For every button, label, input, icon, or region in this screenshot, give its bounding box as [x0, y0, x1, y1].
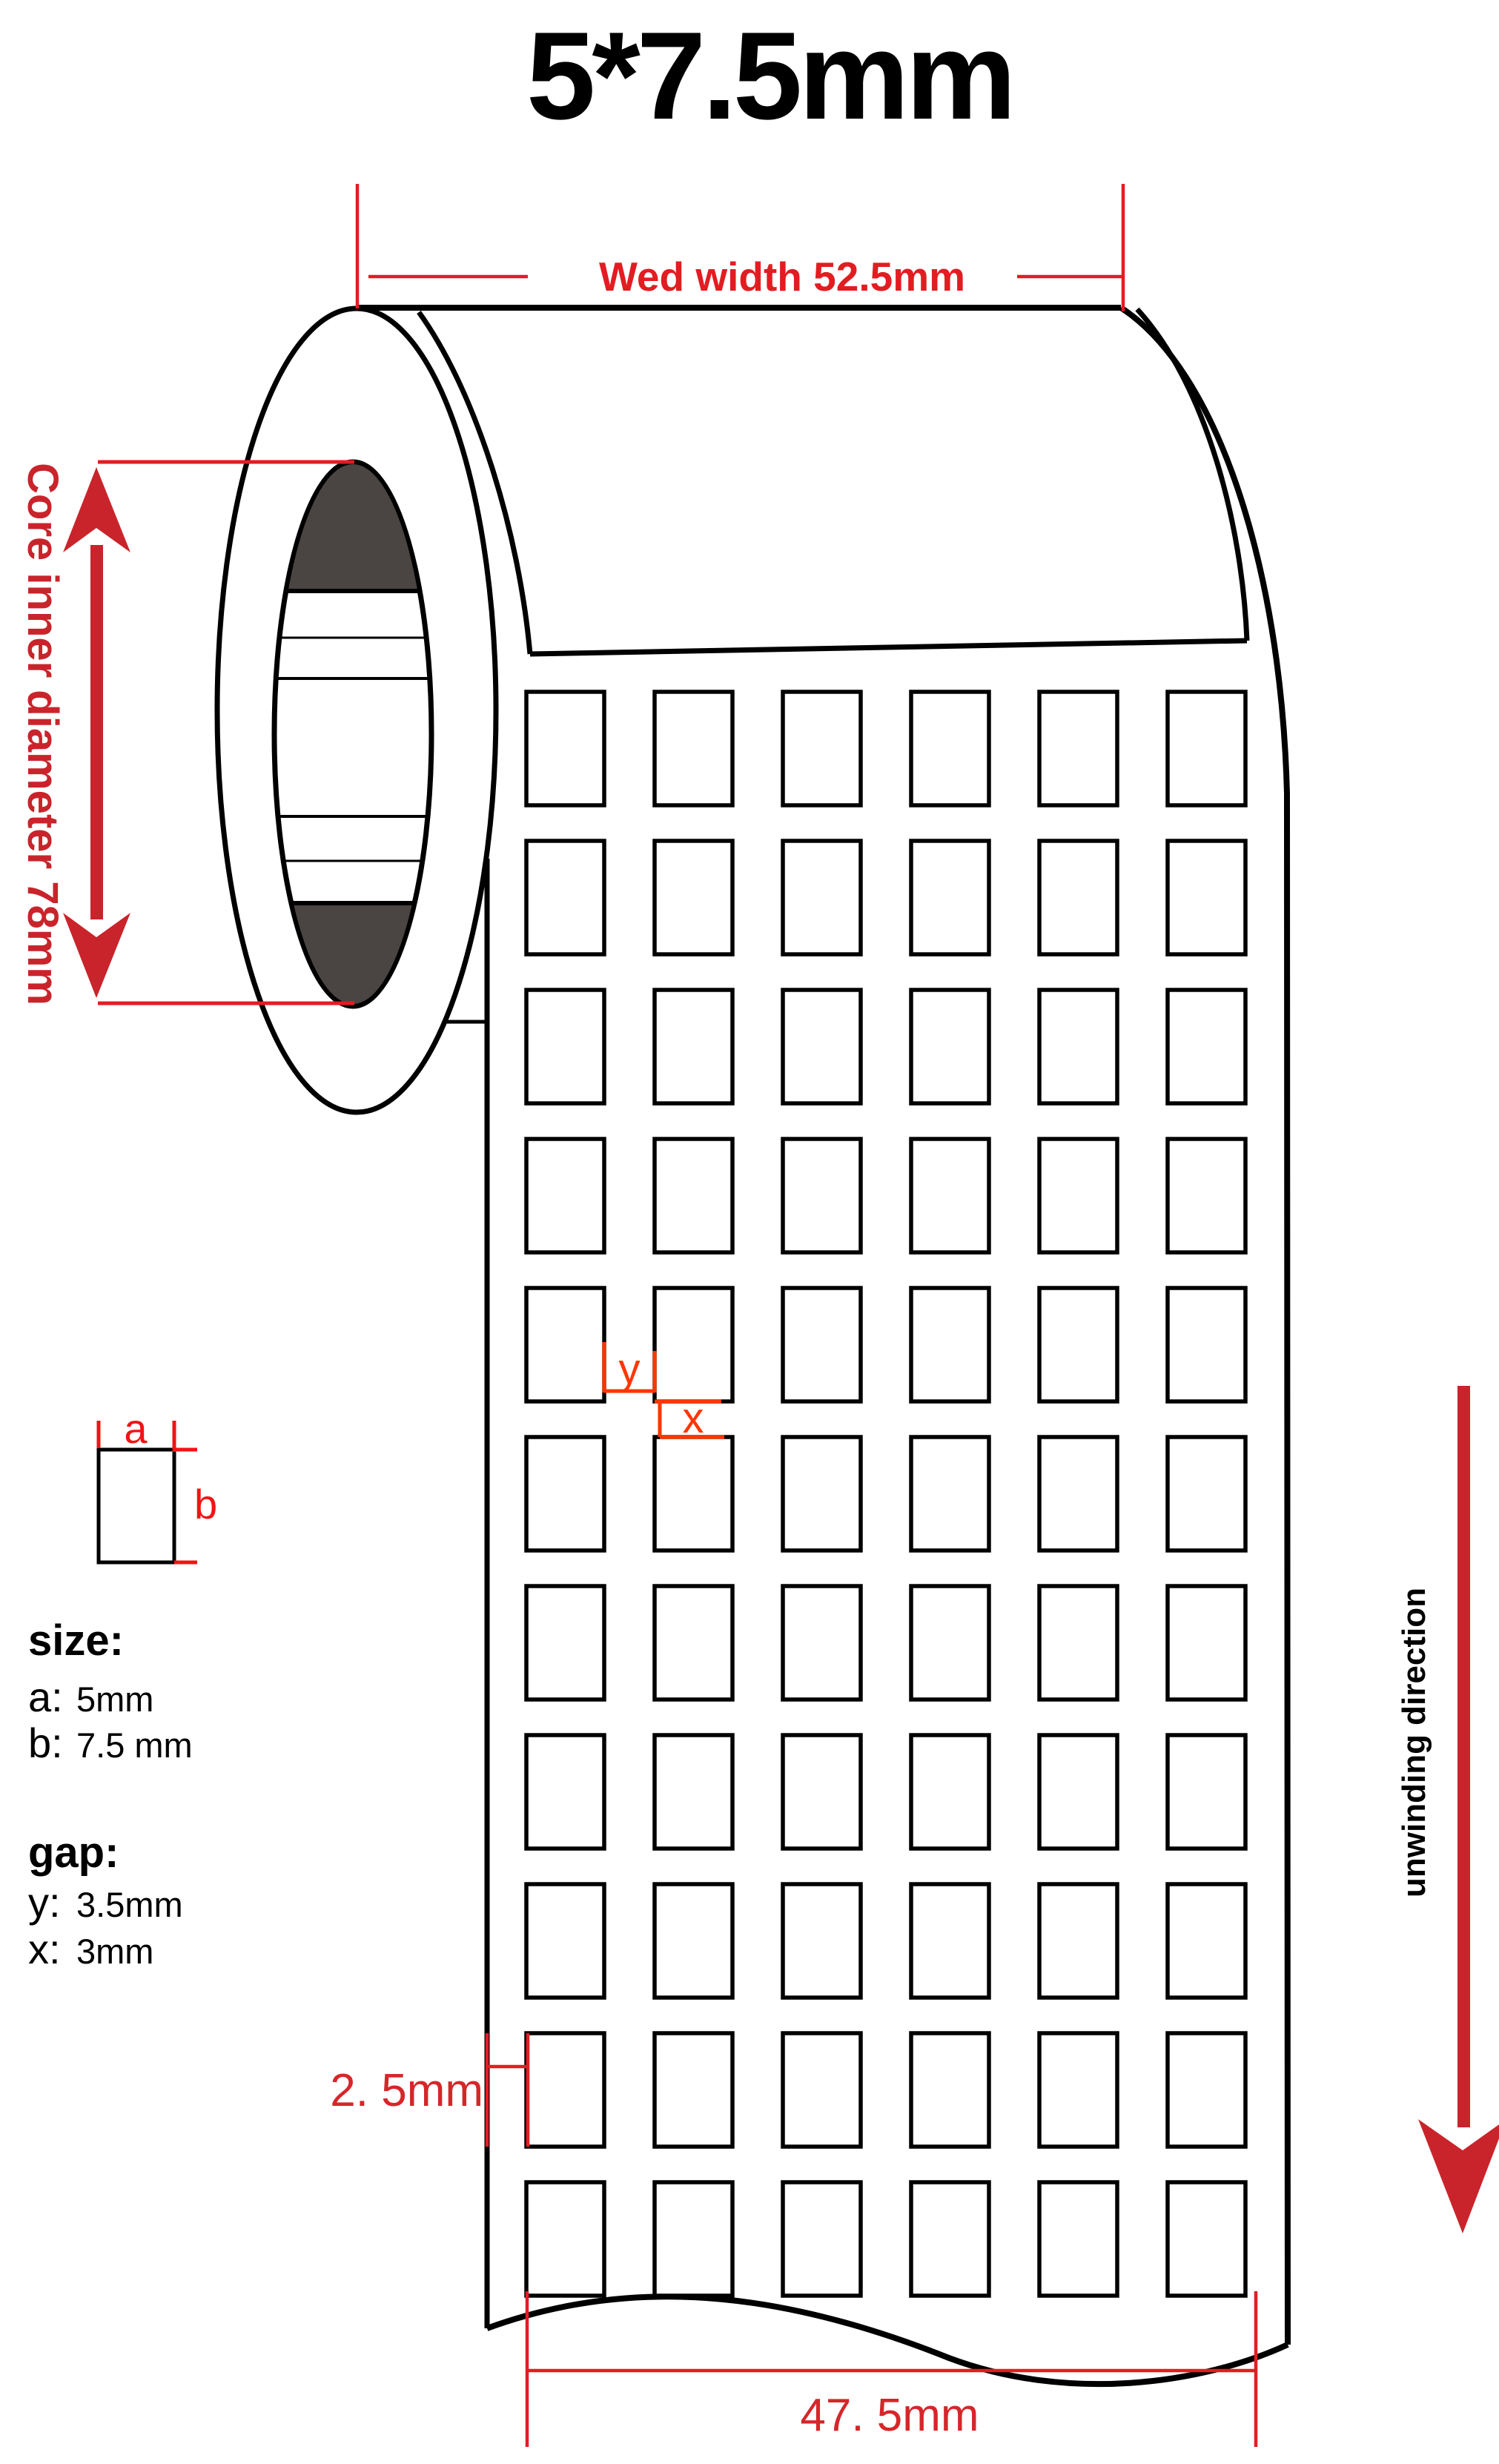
- gap-x-key: x:: [28, 1926, 61, 1972]
- label-cell: [655, 1288, 732, 1401]
- web-width-label: Wed width 52.5mm: [599, 254, 965, 300]
- label-cell: [655, 841, 732, 954]
- label-cell: [1168, 1437, 1245, 1550]
- label-cell: [1039, 841, 1117, 954]
- label-cell: [783, 1288, 861, 1401]
- label-cell: [911, 1288, 989, 1401]
- dim-x-label: x: [683, 1394, 704, 1442]
- label-cell: [1168, 1884, 1245, 1998]
- arrow-head-down-icon: [1418, 2119, 1499, 2233]
- label-cell: [655, 1884, 732, 1998]
- label-cell: [783, 990, 861, 1103]
- label-cell: [911, 1586, 989, 1700]
- label-cell: [783, 1586, 861, 1700]
- label-cell: [783, 1735, 861, 1849]
- arrow-head-up-icon: [63, 467, 130, 552]
- label-cell: [1039, 1139, 1117, 1252]
- label-cell: [911, 1735, 989, 1849]
- label-cell: [1168, 841, 1245, 954]
- size-a-value: 5mm: [76, 1679, 153, 1719]
- label-size-diagram: a b: [99, 1405, 217, 1562]
- left-margin-dimension: 2. 5mm: [330, 2033, 528, 2147]
- label-cell: [1168, 1735, 1245, 1849]
- label-cell: [1039, 1437, 1117, 1550]
- legend-block: size: a: 5mm b: 7.5 mm gap: y: 3.5mm x: …: [28, 1616, 193, 1972]
- label-cell: [526, 692, 604, 805]
- label-cell: [1039, 1586, 1117, 1700]
- gap-x-value: 3mm: [76, 1932, 153, 1971]
- gap-heading: gap:: [28, 1829, 119, 1877]
- label-cell: [526, 1288, 604, 1401]
- size-b-key: b:: [28, 1720, 63, 1766]
- label-cell: [655, 1139, 732, 1252]
- label-grid: [526, 692, 1245, 2296]
- label-cell: [1039, 990, 1117, 1103]
- label-roll-diagram: 5*7.5mm Wed width 52.5mm Core inner diam…: [0, 0, 1499, 2464]
- label-cell: [1168, 2182, 1245, 2296]
- label-cell: [783, 1437, 861, 1550]
- label-cell: [526, 1884, 604, 1998]
- unwinding-direction: unwinding direction: [1396, 1386, 1499, 2233]
- label-cell: [526, 1437, 604, 1550]
- label-cell: [1168, 1586, 1245, 1700]
- label-cell: [1039, 1884, 1117, 1998]
- gap-y-key: y:: [28, 1879, 61, 1926]
- diagram-canvas: 5*7.5mm Wed width 52.5mm Core inner diam…: [0, 0, 1499, 2464]
- label-cell: [1039, 2182, 1117, 2296]
- size-a-key: a:: [28, 1674, 63, 1720]
- label-cell: [783, 692, 861, 805]
- bottom-width-label: 47. 5mm: [800, 2390, 979, 2441]
- label-cell: [1039, 692, 1117, 805]
- label-cell: [911, 1139, 989, 1252]
- arrow-shaft: [90, 545, 103, 919]
- label-cell: [655, 2182, 732, 2296]
- label-cell: [911, 1437, 989, 1550]
- label-cell: [1168, 692, 1245, 805]
- label-cell: [526, 1139, 604, 1252]
- dim-y-label: y: [619, 1345, 641, 1393]
- label-cell: [655, 1437, 732, 1550]
- label-cell: [911, 692, 989, 805]
- size-b-value: 7.5 mm: [76, 1725, 193, 1765]
- arrow-head-down-icon: [63, 913, 130, 998]
- label-cell: [526, 841, 604, 954]
- label-cell: [655, 1735, 732, 1849]
- label-cell: [911, 2182, 989, 2296]
- label-cell: [1039, 2033, 1117, 2147]
- label-cell: [1168, 2033, 1245, 2147]
- label-cell: [783, 1139, 861, 1252]
- label-cell: [1039, 1735, 1117, 1849]
- unwinding-direction-label: unwinding direction: [1396, 1588, 1432, 1897]
- label-cell: [1039, 1288, 1117, 1401]
- label-cell: [911, 2033, 989, 2147]
- label-cell: [526, 1586, 604, 1700]
- label-cell: [526, 990, 604, 1103]
- label-cell: [655, 1586, 732, 1700]
- core-diameter-arrow-icon: [63, 467, 130, 998]
- label-cell: [526, 1735, 604, 1849]
- label-cell: [655, 2033, 732, 2147]
- dim-a-label: a: [124, 1405, 148, 1452]
- gap-y-value: 3.5mm: [76, 1885, 183, 1924]
- label-cell: [911, 841, 989, 954]
- page-title: 5*7.5mm: [526, 6, 1013, 145]
- label-cell: [655, 990, 732, 1103]
- label-cell: [526, 2182, 604, 2296]
- label-cell: [783, 1884, 861, 1998]
- label-cell: [655, 692, 732, 805]
- label-cell: [911, 1884, 989, 1998]
- bottom-width-dimension: 47. 5mm: [527, 2291, 1256, 2447]
- size-heading: size:: [28, 1616, 124, 1665]
- label-cell: [783, 2182, 861, 2296]
- label-cell: [911, 990, 989, 1103]
- label-cell: [526, 2033, 604, 2147]
- core-diameter-label: Core inner diameter 78mm: [19, 463, 67, 1005]
- left-margin-label: 2. 5mm: [330, 2065, 483, 2116]
- dim-b-label: b: [194, 1481, 217, 1527]
- label-cell: [1168, 1288, 1245, 1401]
- label-cell: [783, 841, 861, 954]
- sample-label-rect: [99, 1450, 174, 1562]
- arrow-shaft: [1457, 1386, 1470, 2127]
- label-cell: [1168, 990, 1245, 1103]
- label-cell: [1168, 1139, 1245, 1252]
- web-fold-line: [530, 641, 1247, 654]
- label-cell: [783, 2033, 861, 2147]
